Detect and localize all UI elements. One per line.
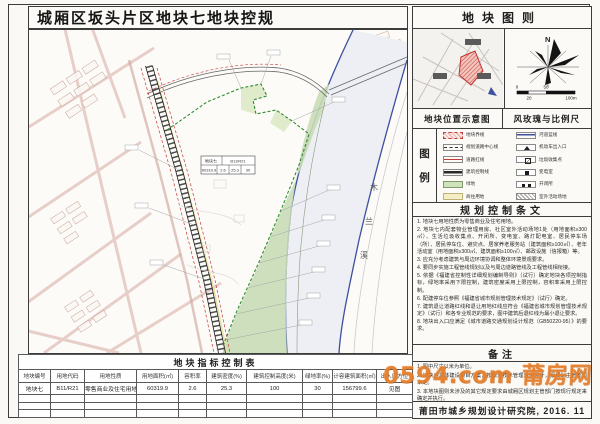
svg-text:兰: 兰 [365,216,373,226]
legend-item: 变电室 [516,169,589,176]
building-control-line-swatch [443,169,463,176]
provisions-text: 1. 地块七用地性质为零售商业及住宅用地。 2. 地块七内配套物业管理用房、社区… [413,217,591,345]
legend-item: 垃圾收集点 [516,156,589,163]
provision-item: 3. 应充分考虑建筑与周边环境协调和整体环境景观要求。 [417,257,587,264]
info-plot-area: 60319.9 [202,168,217,173]
svg-text:0: 0 [516,85,519,90]
title-box: 城厢区坂头片区地块七地块控规 [28,6,408,29]
table-row: 地块七 B11/R21 零售商业及住宅用地 60319.9 2.6 25.3 1… [19,383,413,395]
info-plot-far: 2.6 [220,168,226,173]
provision-item: 6. 配建停车位参照《福建省城市规划管理技术规定》（试行）确定。 [417,296,587,303]
institute-signature: 莆田市城乡规划设计研究院, 2016. 11 [413,402,591,418]
substation-swatch [516,169,536,176]
windrose-caption: 风玫瑰与比例尺 [503,109,592,128]
blue-line-swatch [516,132,536,139]
switch-station-swatch [516,181,536,188]
provisions-header: 规划控制条文 [413,203,591,217]
table-empty-row [19,402,413,410]
location-sketch [413,29,505,108]
page-title: 城厢区坂头片区地块七地块控规 [29,7,275,28]
legend-title: 图 例 [413,129,437,202]
road-centerline-swatch [443,144,463,151]
legend-item: 地块界线 [443,132,516,139]
legend-item: 道路红线 [443,156,516,163]
provision-item: 5. 依据《福建省控制性详细规划编制导则》（试行）确定地块各项控制指标，绿地率采… [417,273,587,295]
trash-point-swatch [516,156,536,163]
provision-item: 4. 要同步实施工程管线规划以及与周边道路管线及工程管线相衔接。 [417,265,587,272]
provision-item: 1. 地块七用地性质为零售商业及住宅用地。 [417,219,587,226]
info-plot-name: 地块七 [205,158,217,164]
note-line: 2. 地块内具体建设项目方案，按规划技术管理规定设计，报规划主管部门审定。 [417,373,587,388]
wind-rose-panel: N [505,29,591,108]
note-line: 3. 本地块图则未涉及的其它规定要求由城厢区规划主管部门按现行规定来确定并执行。 [417,389,587,402]
legend-item: 规划道路中心线 [443,144,516,151]
legend-item: 河道蓝线 [516,132,589,139]
indicator-table: 地块指标控制表 地块编号 用地代码 用地性质 用地面积(㎡) 容积率 建筑密度(… [18,354,413,418]
legend-item: 开闭所 [516,181,589,188]
scale-bar: 0 50 20 100m [516,85,577,101]
mixed-use-land-swatch [443,193,463,200]
info-plot-green: 30 [246,168,251,173]
plot-boundary-swatch [443,132,463,139]
plot-diagram-header: 地块图则 [413,7,591,29]
right-panel: 地块图则 [412,6,592,419]
provision-item: 2. 地块七内配套物业管理用房、社区室外活动场地1处（用地面积≥300㎡）、生活… [417,227,587,256]
green-space-swatch [443,181,463,188]
legend-item: 建筑控制线 [443,169,516,176]
info-plot-code: B11/R21 [230,159,246,164]
svg-text:50: 50 [543,85,549,90]
notes-header: 备注 [413,345,591,362]
plot-info-box: 地块七 B11/R21 60319.9 2.6 25.3 30 [201,156,255,174]
road-redline-swatch [443,156,463,163]
table-empty-row [19,395,413,403]
svg-text:溪: 溪 [360,250,368,260]
river [285,30,407,353]
provision-item: 8. 地块出入口应满足《城市道路交通规划设计规范（GB50220-95）》的要求… [417,319,587,333]
legend-item: 绿地 [443,181,516,188]
plan-sheet: 城厢区坂头片区地块七地块控规 [0,0,600,424]
note-line: 1. 图中尺寸以米为单位。 [417,364,587,372]
notes-text: 1. 图中尺寸以米为单位。 2. 地块内具体建设项目方案，按规划技术管理规定设计… [413,362,591,402]
info-plot-density: 25.3 [231,168,240,173]
legend-item: 商住用地 [443,193,516,200]
svg-text:100m: 100m [565,96,577,101]
provision-item: 7. 建筑退让道路红线和退让用地红线应符合《福建省城市规划管理技术规定》（试行）… [417,304,587,318]
legend-item: 机动车出入口 [516,144,589,151]
plan-map: 木 兰 溪 地块七 B11/R21 60319.9 2.6 25.3 30 [29,30,407,353]
svg-text:木: 木 [370,182,378,192]
table-empty-row [19,410,413,418]
north-label: N [545,35,550,44]
svg-text:20: 20 [526,96,532,101]
legend-section: 图 例 地块界线 河道蓝线 规划道路中心线 机动车出入口 道路红线 垃圾收集点 … [413,129,591,203]
main-map-panel: 木 兰 溪 地块七 B11/R21 60319.9 2.6 25.3 30 [28,29,408,354]
indicator-table-title: 地块指标控制表 [19,355,413,370]
legend-item: 室外活动场地 [516,193,589,200]
location-sketch-caption: 地块位置示意图 [413,109,503,128]
table-header-row: 地块编号 用地代码 用地性质 用地面积(㎡) 容积率 建筑密度(%) 建筑控制高… [19,370,413,383]
vehicle-entry-swatch [516,144,536,151]
activity-ground-swatch [516,193,536,200]
